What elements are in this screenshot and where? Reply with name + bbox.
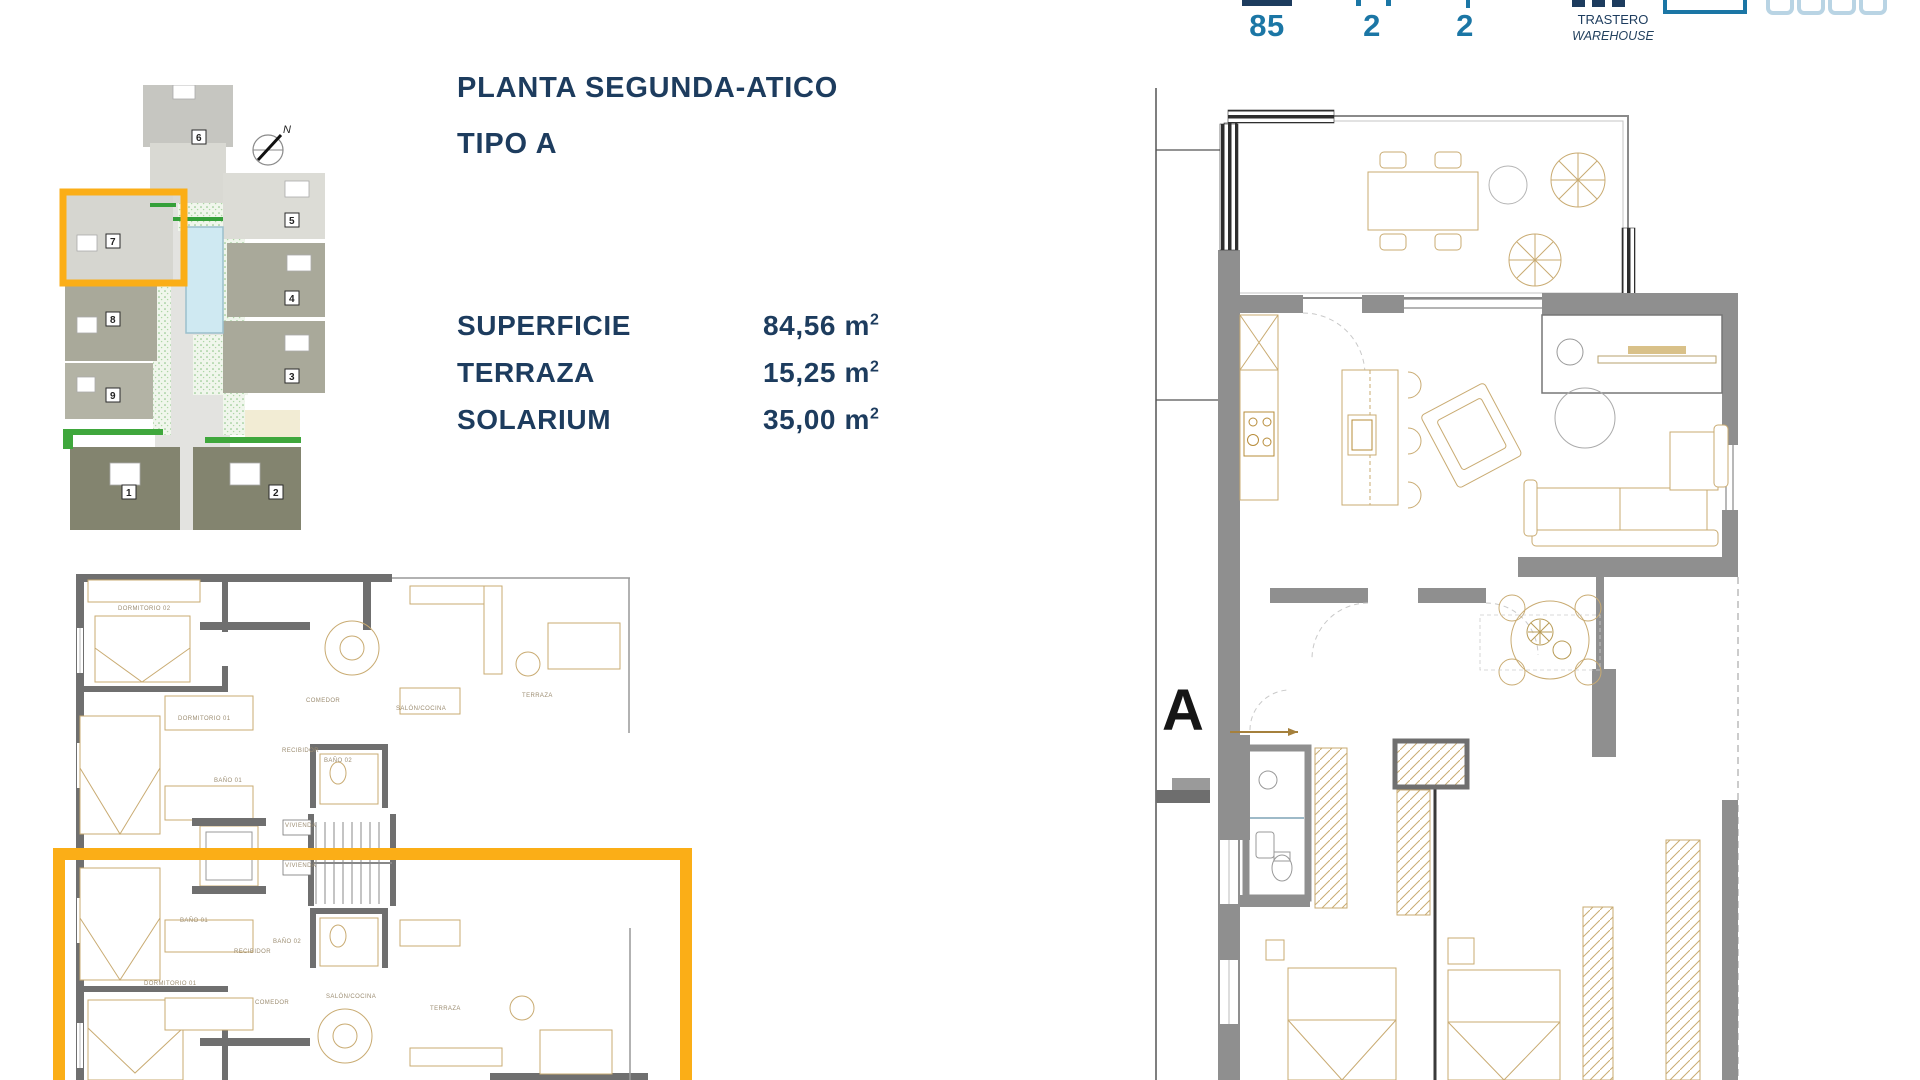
svg-text:COMEDOR: COMEDOR <box>255 1000 289 1006</box>
bedrooms <box>1266 938 1560 1080</box>
svg-text:DORMITORIO 01: DORMITORIO 01 <box>144 981 197 987</box>
svg-text:BAÑO 02: BAÑO 02 <box>273 938 301 945</box>
page: 85 2 2 TRASTERO WAREHOUSE PLANTA SEGUNDA… <box>0 0 1920 1080</box>
spec-value: 15,25 m <box>763 357 870 388</box>
terrace-top <box>1224 110 1635 298</box>
plant <box>1509 153 1605 286</box>
reference-line <box>1156 88 1220 1080</box>
terrace-side <box>1480 595 1601 685</box>
bed-icon <box>1356 0 1361 6</box>
page-subtitle: TIPO A <box>457 128 557 161</box>
svg-text:VIVIENDA: VIVIENDA <box>285 823 316 829</box>
building-2 <box>193 447 301 530</box>
svg-text:8: 8 <box>110 315 116 326</box>
north-compass-icon: N <box>253 124 291 165</box>
spec-value: 35,00 m <box>763 404 870 435</box>
walls <box>1218 124 1738 1080</box>
section-label: A <box>1162 678 1204 743</box>
stat-bedrooms: 2 <box>1337 8 1407 44</box>
svg-text:BAÑO 01: BAÑO 01 <box>214 777 242 784</box>
storage-boxes-icon <box>1592 0 1605 7</box>
svg-text:3: 3 <box>289 372 295 383</box>
building-4 <box>227 243 325 317</box>
svg-text:VIVIENDA: VIVIENDA <box>285 863 316 869</box>
storage-boxes-icon <box>1612 0 1625 7</box>
pool <box>186 227 223 333</box>
svg-text:5: 5 <box>289 216 295 227</box>
storage-label: TRASTERO WAREHOUSE <box>1563 12 1663 44</box>
storage-label-en: WAREHOUSE <box>1563 28 1663 44</box>
svg-text:TERRAZA: TERRAZA <box>522 693 553 699</box>
svg-text:BAÑO 01: BAÑO 01 <box>180 917 208 924</box>
spec-label: SOLARIUM <box>457 404 611 435</box>
svg-text:9: 9 <box>110 391 116 402</box>
overview-floor-plan: VIVIENDA VIVIENDA <box>70 568 648 1080</box>
spec-solarium: SOLARIUM 35,00 m2 <box>457 404 977 436</box>
bath-icon <box>1466 0 1470 8</box>
svg-text:SALÓN/COCINA: SALÓN/COCINA <box>396 705 446 712</box>
living-room <box>1420 315 1728 546</box>
spec-superficie: SUPERFICIE 84,56 m2 <box>457 310 977 342</box>
svg-text:DORMITORIO 01: DORMITORIO 01 <box>178 716 231 722</box>
area-icon <box>1242 0 1292 6</box>
site-key-plan: 6 7 5 4 8 3 9 1 2 N <box>55 85 325 530</box>
svg-text:7: 7 <box>110 237 116 248</box>
svg-text:RECIBIDOR: RECIBIDOR <box>282 748 319 754</box>
svg-text:6: 6 <box>196 133 202 144</box>
svg-text:COMEDOR: COMEDOR <box>306 698 340 704</box>
svg-text:BAÑO 02: BAÑO 02 <box>324 757 352 764</box>
svg-text:TERRAZA: TERRAZA <box>430 1006 461 1012</box>
spec-value: 84,56 m <box>763 310 870 341</box>
bed-icon <box>1386 0 1391 6</box>
stair-core: VIVIENDA VIVIENDA <box>192 814 396 906</box>
detail-floor-plan: A <box>1130 80 1830 1080</box>
svg-text:4: 4 <box>289 294 295 305</box>
svg-text:2: 2 <box>273 488 279 499</box>
building-5 <box>223 173 325 239</box>
spec-label: SUPERFICIE <box>457 310 631 341</box>
lower-apartment <box>76 852 648 1080</box>
storage-label-es: TRASTERO <box>1563 12 1663 28</box>
svg-text:1: 1 <box>126 488 132 499</box>
building-3 <box>223 321 325 393</box>
brand-logo <box>1766 0 1887 15</box>
svg-text:RECIBIDOR: RECIBIDOR <box>234 949 271 955</box>
stat-bathrooms: 2 <box>1430 8 1500 44</box>
page-title: PLANTA SEGUNDA-ATICO <box>457 72 838 105</box>
svg-text:N: N <box>283 124 291 136</box>
stat-surface: 85 <box>1232 8 1302 44</box>
spec-terraza: TERRAZA 15,25 m2 <box>457 357 977 389</box>
spec-label: TERRAZA <box>457 357 595 388</box>
upper-apartment <box>76 574 630 852</box>
storage-boxes-icon <box>1572 0 1585 7</box>
svg-text:DORMITORIO 02: DORMITORIO 02 <box>118 606 171 612</box>
svg-text:SALÓN/COCINA: SALÓN/COCINA <box>326 993 376 1000</box>
warehouse-icon <box>1663 0 1747 14</box>
kitchen <box>1240 315 1421 508</box>
